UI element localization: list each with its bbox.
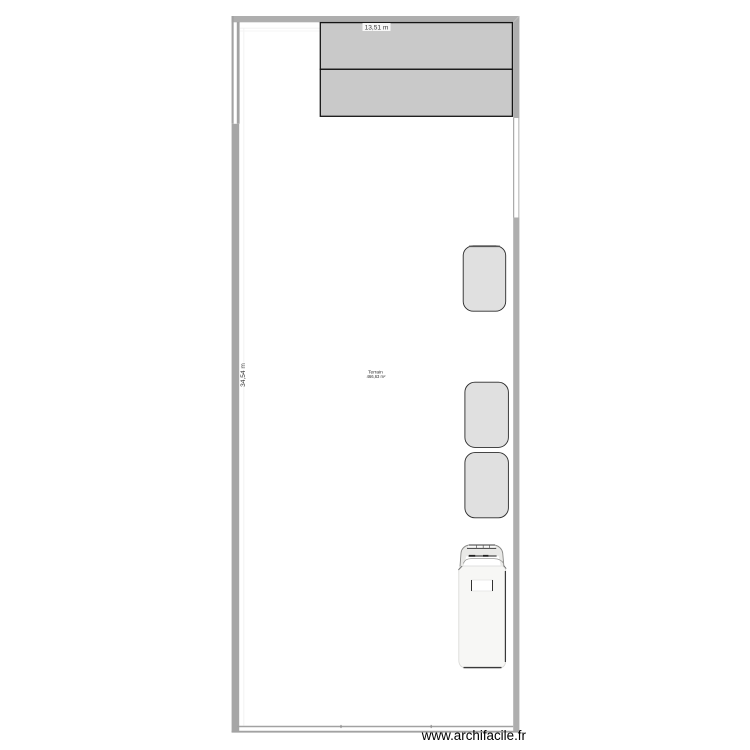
- svg-text:34,54 m: 34,54 m: [240, 363, 247, 387]
- svg-text:www.archifacile.fr: www.archifacile.fr: [421, 728, 527, 743]
- svg-text:466,63 m²: 466,63 m²: [367, 374, 386, 379]
- svg-text:13,51 m: 13,51 m: [365, 24, 389, 31]
